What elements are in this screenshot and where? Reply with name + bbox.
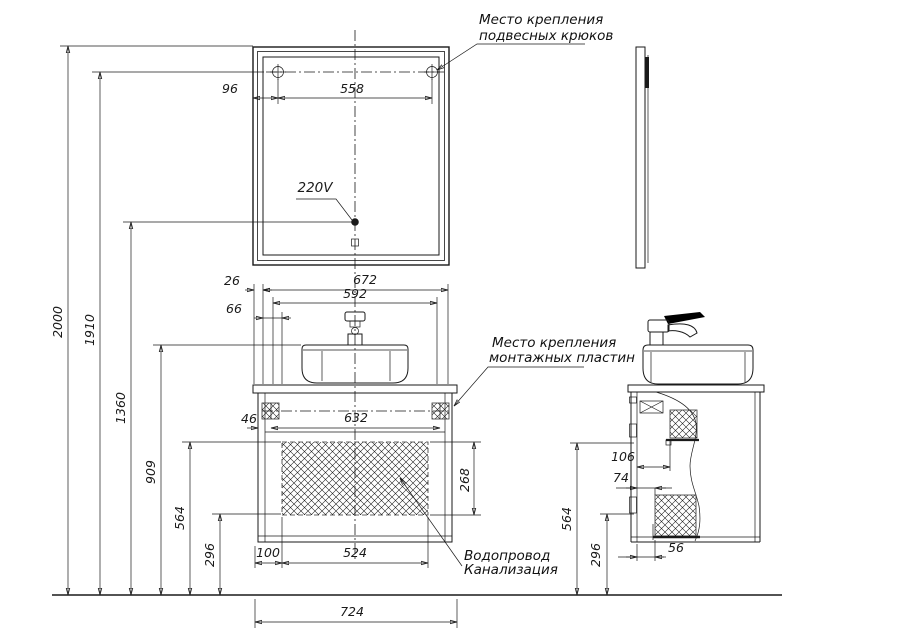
dim-2000: 2000 (50, 46, 253, 595)
countertop-side (628, 385, 764, 392)
hooks-label-line2: подвесных крюков (479, 28, 613, 44)
dim-672-value: 672 (353, 272, 377, 287)
hooks-leader-line (437, 44, 585, 70)
power-point-icon (351, 218, 359, 226)
dim-74: 74 (613, 470, 672, 495)
dims-above-vanity: 26 672 592 66 (224, 272, 448, 384)
water-supply-cutout-side (670, 410, 697, 438)
dim-558-value: 558 (340, 81, 364, 96)
faucet-side (648, 312, 705, 345)
dim-296-side-value: 296 (588, 543, 603, 567)
mirror-hook-side-icon (645, 57, 649, 88)
plates-leader-line (454, 367, 584, 406)
dim-724-value: 724 (340, 604, 364, 619)
mirror-side-view (636, 47, 649, 268)
plumbing-leader-line (400, 478, 462, 566)
dim-66-value: 66 (226, 301, 242, 316)
plumbing-cutout-front (282, 442, 428, 515)
mounting-plate-right (432, 403, 449, 419)
dim-724: 724 (255, 599, 457, 628)
mounting-plate-left (262, 403, 279, 419)
vanity-front-view: 26 672 592 66 (224, 272, 481, 628)
dim-558: 558 (278, 81, 432, 98)
mounting-plate-side-icon (640, 401, 663, 413)
dim-296-value: 296 (202, 543, 217, 567)
dim-106: 106 (611, 440, 670, 471)
power-label: 220V (297, 180, 334, 196)
mirror-outer-frame (253, 47, 449, 265)
dim-909-value: 909 (143, 460, 158, 484)
dim-56-value: 56 (668, 540, 684, 555)
dim-632-value: 632 (344, 410, 368, 425)
dim-1910-value: 1910 (82, 314, 97, 346)
dim-632: 632 (271, 410, 440, 428)
dim-524-value: 524 (343, 545, 367, 560)
dim-564-side: 564 (559, 443, 634, 595)
dim-592-value: 592 (343, 286, 367, 301)
plates-label-line2: монтажных пластин (489, 350, 635, 366)
dim-106-value: 106 (611, 449, 635, 464)
plates-label-line1: Место крепления (492, 335, 616, 351)
dim-2000-value: 2000 (50, 306, 65, 338)
power-connection-callout: 220V (296, 180, 359, 246)
dim-96-value: 96 (222, 81, 238, 96)
drain-cutout-side (655, 495, 696, 536)
hooks-label-line1: Место крепления (479, 12, 603, 28)
mirror-side-body (636, 47, 645, 268)
dim-46-value: 46 (241, 411, 257, 426)
vessel-sink-side (643, 345, 753, 384)
dim-26-value: 26 (224, 273, 240, 288)
dim-268-value: 268 (457, 468, 472, 492)
dim-564-value: 564 (172, 506, 187, 530)
dim-296-side: 296 (588, 514, 634, 595)
label-mounting-plates: Место крепления монтажных пластин (454, 335, 635, 406)
plumbing-label-line2: Канализация (464, 562, 558, 578)
dim-268: 268 (430, 442, 481, 515)
dim-74-value: 74 (613, 470, 629, 485)
installation-drawing-page: 2000 1910 1360 909 564 296 (0, 0, 900, 636)
dim-100-value: 100 (256, 545, 280, 560)
installation-drawing: 2000 1910 1360 909 564 296 (0, 0, 900, 636)
label-hanging-hooks: Место крепления подвесных крюков (437, 12, 613, 70)
dim-56: 56 (618, 540, 684, 561)
dim-46: 46 (241, 411, 258, 428)
hanging-hook-right-icon (424, 64, 440, 80)
hanging-hook-left-icon (270, 64, 286, 80)
dim-564-side-value: 564 (559, 507, 574, 531)
dim-1360-value: 1360 (113, 392, 128, 424)
